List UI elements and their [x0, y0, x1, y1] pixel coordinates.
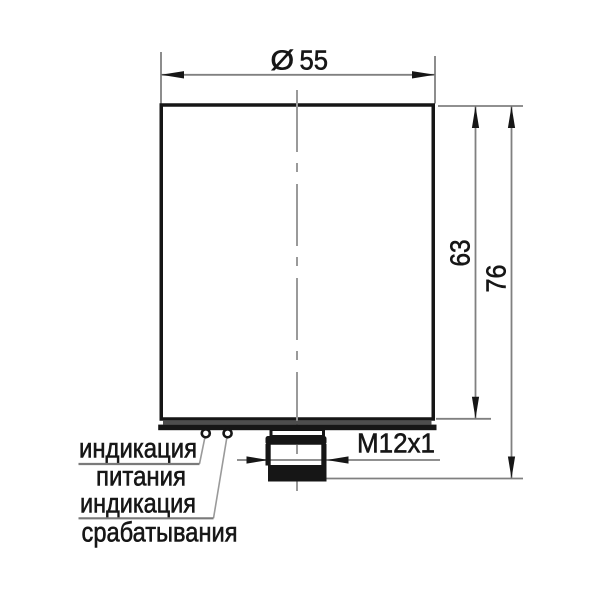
- svg-text:индикация: индикация: [79, 433, 197, 464]
- svg-text:срабатывания: срабатывания: [82, 517, 238, 548]
- svg-text:76: 76: [481, 265, 512, 293]
- svg-text:индикация: индикация: [80, 488, 196, 519]
- svg-text:55: 55: [300, 45, 329, 76]
- svg-text:M12x1: M12x1: [357, 428, 435, 459]
- svg-text:63: 63: [445, 240, 476, 267]
- svg-text:Ø: Ø: [271, 45, 295, 76]
